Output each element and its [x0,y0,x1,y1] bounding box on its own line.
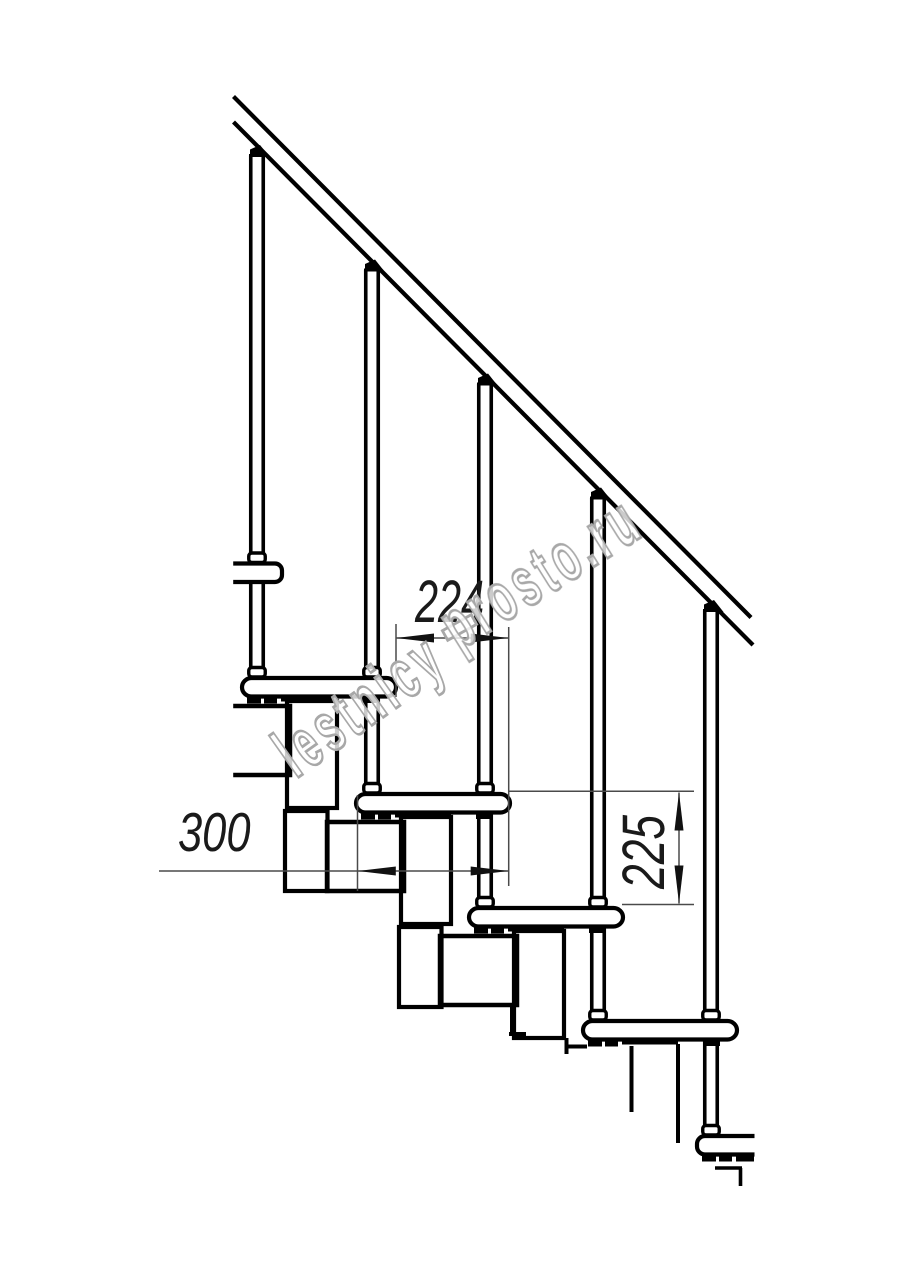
svg-text:300: 300 [178,801,251,863]
svg-text:225: 225 [610,814,677,889]
